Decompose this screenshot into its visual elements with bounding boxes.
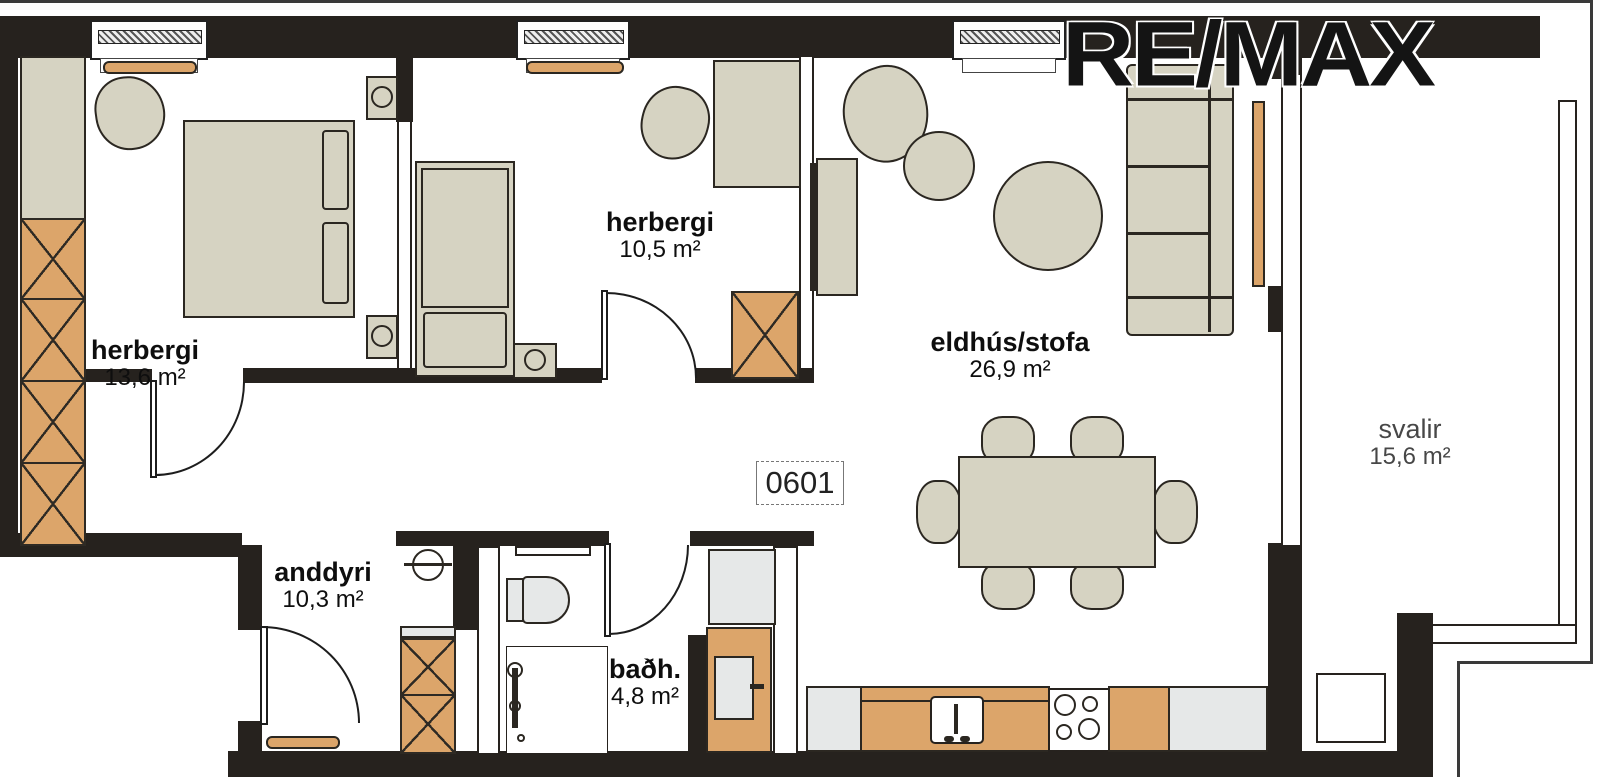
sink-faucet-base-1 <box>944 736 954 742</box>
bedroom2-lamp <box>524 349 546 371</box>
balcony-sliding-door <box>1252 101 1265 287</box>
bedroom1-area: 13,6 m² <box>55 364 235 393</box>
tall-cabinet-door <box>714 656 754 720</box>
bedroom2-area: 10,5 m² <box>565 236 755 265</box>
dining-table <box>958 456 1156 568</box>
balcony-railing-bottom <box>1431 624 1577 644</box>
room-label-bath: baðh. 4,8 m² <box>580 655 710 712</box>
bathroom-door-swing <box>609 545 689 635</box>
bedroom1-closet <box>20 56 86 220</box>
living-area: 26,9 m² <box>915 356 1105 385</box>
bedroom2-pillow <box>423 312 507 368</box>
balcony-storage-box <box>1316 673 1386 743</box>
bedroom2-window-hatch <box>524 30 624 44</box>
sofa-armrest-bottom-line <box>1128 296 1232 299</box>
bedroom1-window-hatch <box>98 30 202 44</box>
bathroom-left-wall <box>477 546 500 755</box>
tv-sideboard <box>816 158 858 296</box>
sofa-seat-line-2 <box>1128 232 1210 235</box>
stove-burner-4 <box>1078 718 1100 740</box>
stove-burner-3 <box>1056 724 1072 740</box>
bedroom1-wardrobe-cell-1 <box>20 218 86 300</box>
shower-head <box>507 662 523 678</box>
bedroom2-chair <box>633 79 717 167</box>
bathroom-top-wall <box>396 531 609 546</box>
bath-area: 4,8 m² <box>580 683 710 712</box>
sink-faucet <box>954 704 958 734</box>
kitchen-counter-2 <box>1108 686 1170 752</box>
bedroom1-wardrobe-cell-4 <box>20 462 86 546</box>
bedroom2-door-swing <box>606 292 697 378</box>
bedroom1-radiator <box>103 61 197 74</box>
balcony-railing-right <box>1558 100 1577 632</box>
sofa-seat-line-1 <box>1128 165 1210 168</box>
hall-name: anddyri <box>248 558 398 586</box>
room-label-balcony: svalir 15,6 m² <box>1340 415 1480 472</box>
hall-area: 10,3 m² <box>248 586 398 615</box>
room-label-bedroom2: herbergi 10,5 m² <box>565 208 755 265</box>
shower-drain <box>517 734 525 742</box>
toilet-bowl <box>522 576 570 624</box>
floor-plan: herbergi 13,6 m² herbergi 10,5 m² eldhús… <box>0 0 1600 777</box>
living-ottoman <box>903 131 975 201</box>
living-window-sill <box>962 58 1056 73</box>
room-label-living: eldhús/stofa 26,9 m² <box>915 328 1105 385</box>
kitchen-right-wall <box>1268 543 1302 755</box>
exterior-wall-left <box>0 16 18 557</box>
tall-cabinet-handle <box>750 684 764 689</box>
bath-name: baðh. <box>580 655 710 683</box>
bedroom1-door-swing <box>155 382 245 476</box>
kitchen-fridge <box>708 549 776 625</box>
living-name: eldhús/stofa <box>915 328 1105 356</box>
kitchen-entry-wall <box>773 546 798 755</box>
bedroom2-mattress <box>421 168 509 308</box>
stove-burner-1 <box>1054 694 1076 716</box>
bedroom1-bedroom2-wall <box>397 120 412 374</box>
bedroom1-bedroom2-wall-top <box>396 16 413 122</box>
unit-number-badge: 0601 <box>756 461 844 505</box>
kitchen-counter-grey-right <box>1168 686 1268 752</box>
hall-wardrobe-cell-2 <box>400 694 456 754</box>
balcony-area: 15,6 m² <box>1340 443 1480 472</box>
bedroom2-radiator <box>526 61 624 74</box>
bedroom2-wardrobe <box>731 291 799 379</box>
entry-doormat <box>266 736 340 749</box>
kitchen-counter-grey-left <box>806 686 862 752</box>
shower-knob <box>509 700 521 712</box>
sink-faucet-base-2 <box>960 736 970 742</box>
bedroom1-pillow-top <box>322 130 349 210</box>
stove-burner-2 <box>1082 696 1098 712</box>
hall-bathroom-wall-block <box>453 545 477 630</box>
outline-step-horizontal <box>1457 661 1593 664</box>
living-window-hatch <box>960 30 1060 44</box>
bedroom2-name: herbergi <box>565 208 755 236</box>
hall-wardrobe-shelf <box>400 626 456 638</box>
balcony-name: svalir <box>1340 415 1480 443</box>
balcony-column <box>1397 613 1433 755</box>
bedroom1-chair <box>90 71 170 154</box>
kitchen-top-wall <box>690 531 814 546</box>
bedroom2-desk <box>713 60 801 188</box>
bedroom1-lamp-bottom <box>371 325 393 347</box>
dining-chair-left <box>916 480 962 544</box>
outline-step-vertical <box>1457 661 1460 777</box>
hall-fixture-bar <box>404 563 452 566</box>
balcony-glass-wall <box>1281 73 1302 547</box>
room-label-bedroom1: herbergi 13,6 m² <box>55 336 235 393</box>
living-round-rug <box>993 161 1103 271</box>
bedroom1-name: herbergi <box>55 336 235 364</box>
hall-wardrobe-cell-1 <box>400 638 456 696</box>
entry-door-swing <box>262 626 360 723</box>
room-label-hall: anddyri 10,3 m² <box>248 558 398 615</box>
dining-chair-right <box>1152 480 1198 544</box>
bedroom1-pillow-bottom <box>322 222 349 304</box>
remax-watermark: RE/MAX <box>1062 2 1600 108</box>
exterior-wall-bottom <box>228 751 1433 777</box>
bedroom1-lamp-top <box>371 86 393 108</box>
bathroom-mirror-shelf <box>515 546 591 556</box>
